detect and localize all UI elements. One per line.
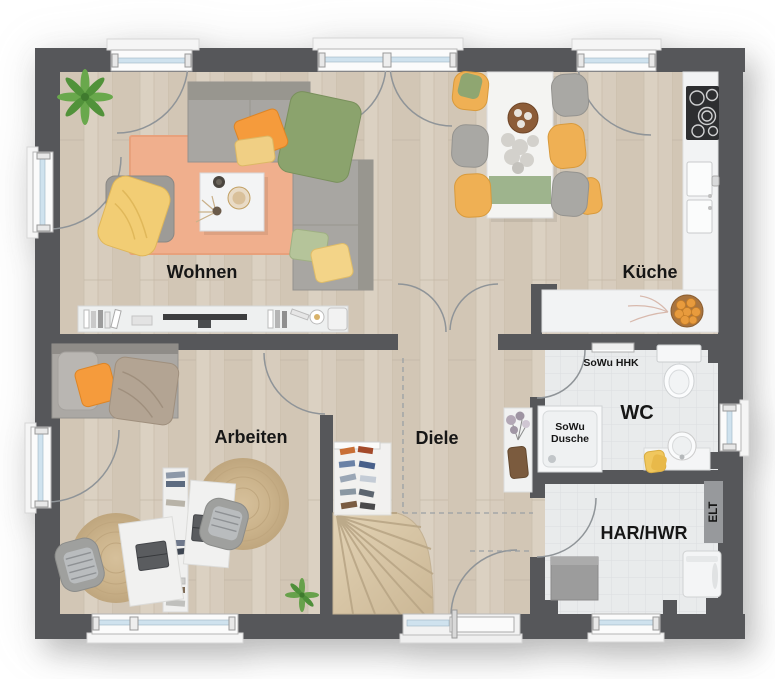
- kitchen-counter-right: [683, 72, 719, 292]
- hall-wardrobe: [504, 408, 532, 492]
- floor-plan-canvas: Wohnen: [0, 0, 775, 679]
- wall-diele-har: [530, 557, 545, 614]
- desk-1: [119, 517, 184, 607]
- entrance-door-leaf: [450, 617, 514, 632]
- elt-label: ELT: [708, 502, 720, 523]
- basket: [328, 308, 347, 330]
- coffee-table: [196, 173, 268, 235]
- wall-arbeiten-diele: [320, 415, 333, 614]
- tv-stand: [198, 320, 211, 328]
- room-label-diele: Diele: [415, 428, 458, 448]
- book-stack: [132, 316, 152, 325]
- room-label-wohnen: Wohnen: [167, 262, 238, 282]
- window-har-bottom: [588, 614, 664, 642]
- floor-plan-svg: Wohnen: [0, 0, 775, 679]
- chair-gray-3: [550, 171, 590, 218]
- utility-box: [551, 557, 598, 600]
- bag: [507, 446, 528, 479]
- kitchen-counter-bottom: [542, 290, 718, 332]
- kitchen-sink-1: [687, 162, 712, 196]
- shoe-rack: [334, 442, 391, 515]
- terrace-door-top: [313, 38, 463, 71]
- window-wc-right: [720, 400, 749, 456]
- chair-gray-2: [451, 124, 489, 168]
- entrance-door: [400, 610, 522, 643]
- pilaster-har-window: [663, 600, 677, 614]
- pilaster-wc-north: [708, 348, 721, 363]
- shower: SoWu Dusche: [538, 406, 602, 472]
- tv-sideboard: [78, 306, 348, 332]
- kitchen-sink-2: [687, 200, 712, 233]
- shower-label-line2: Dusche: [551, 433, 589, 445]
- kitchen-faucet: [712, 176, 719, 186]
- window-wohnen-left: [27, 147, 53, 238]
- window-kueche-top: [572, 39, 661, 71]
- yellow-pillow-2: [310, 242, 354, 283]
- daybed: [52, 344, 180, 426]
- hhk-niche: [592, 343, 634, 352]
- window-arbeiten-left: [25, 423, 51, 513]
- dining-table-group: [487, 72, 557, 222]
- shower-label-line1: SoWu: [555, 421, 585, 433]
- chair-yellow-3: [454, 173, 492, 218]
- pilaster-har-sw: [545, 600, 558, 614]
- room-label-arbeiten: Arbeiten: [214, 427, 287, 447]
- staircase: [333, 513, 433, 614]
- taupe-blanket: [108, 356, 180, 426]
- room-label-har-hwr: HAR/HWR: [601, 523, 688, 543]
- entrance-sidelight: [407, 620, 449, 626]
- shower-drain: [548, 455, 556, 463]
- wall-right: [718, 48, 743, 639]
- tv: [163, 314, 247, 320]
- table-runner: [489, 176, 551, 204]
- fruit-bowl-table: [508, 103, 538, 133]
- chair-gray-1: [551, 73, 590, 117]
- door-handle: [452, 610, 457, 638]
- pilaster-har-se: [706, 598, 721, 614]
- yellow-towel: [644, 450, 668, 474]
- room-label-kueche: Küche: [622, 262, 677, 282]
- washing-machine: [683, 551, 721, 597]
- room-label-wc: WC: [620, 402, 653, 424]
- window-wohnen-top: [107, 39, 199, 71]
- chair-yellow-2: [547, 122, 587, 170]
- yellow-pillow: [234, 135, 275, 166]
- window-arbeiten-bottom: [87, 614, 243, 643]
- hhk-label: SoWu HHK: [583, 357, 639, 369]
